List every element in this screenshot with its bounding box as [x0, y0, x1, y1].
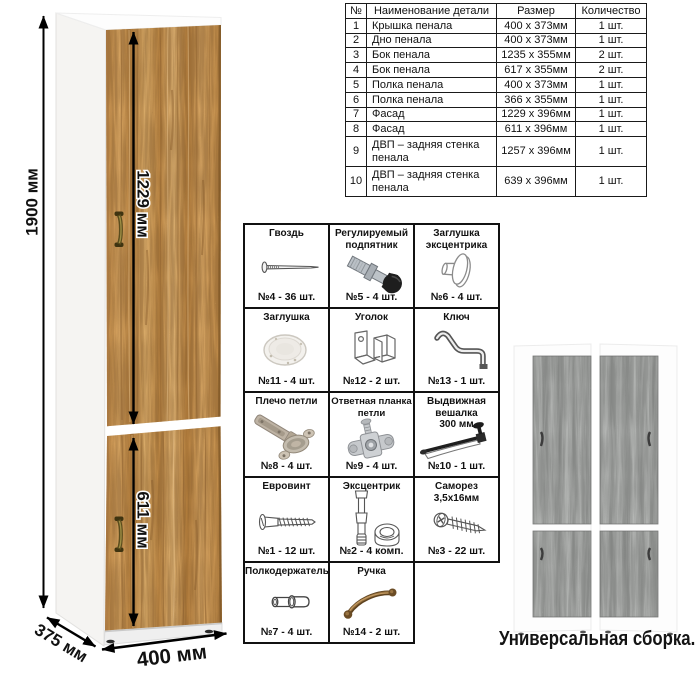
svg-text:1900 мм: 1900 мм: [22, 168, 41, 236]
svg-text:1229 мм: 1229 мм: [134, 170, 153, 238]
svg-text:611 мм: 611 мм: [134, 491, 153, 548]
